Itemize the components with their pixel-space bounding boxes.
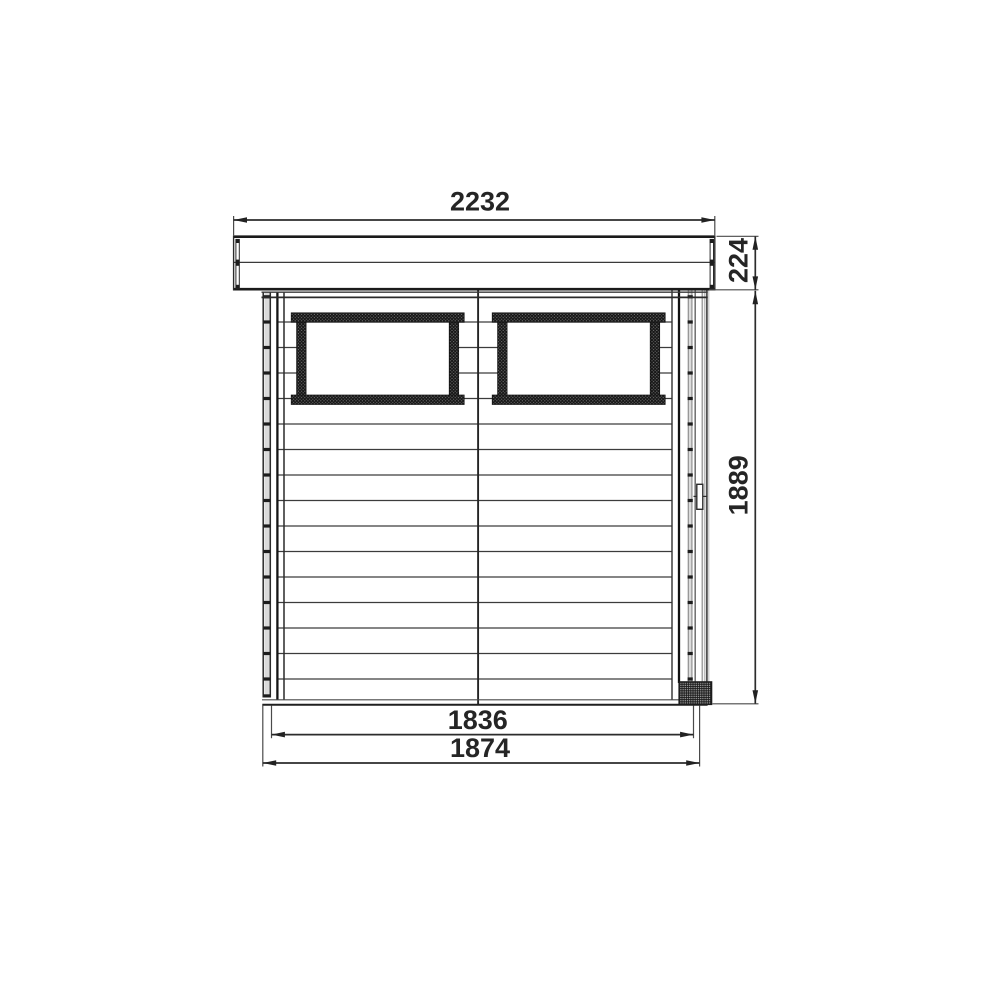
svg-text:1889: 1889 [724, 455, 754, 515]
svg-text:224: 224 [724, 238, 754, 283]
svg-text:2232: 2232 [450, 186, 510, 216]
svg-text:1836: 1836 [448, 705, 508, 735]
svg-text:1874: 1874 [450, 733, 510, 763]
